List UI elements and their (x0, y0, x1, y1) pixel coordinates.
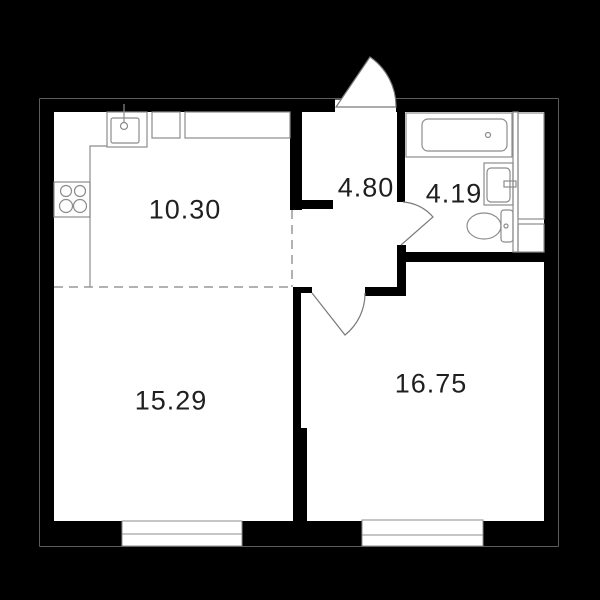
wall-room-top (365, 287, 406, 296)
room-label-living-room: 15.29 (135, 386, 208, 417)
entrance-door-swing (336, 57, 396, 107)
room-label-bathroom: 4.19 (426, 179, 483, 210)
wall-between-rooms-upper (293, 293, 301, 428)
room-label-room: 16.75 (395, 369, 468, 400)
floor-plan: 10.30 4.80 4.19 15.29 16.75 (0, 0, 600, 600)
wall-between-rooms-lower (293, 428, 307, 521)
wall-top-left (40, 99, 335, 112)
wall-right (544, 99, 558, 546)
wall-left (40, 99, 54, 546)
window-right (362, 520, 483, 546)
room-label-kitchen: 10.30 (149, 195, 222, 226)
floor-plan-drawing (0, 0, 600, 600)
wall-top-right (396, 99, 558, 112)
wall-bathroom-left-upper (397, 112, 405, 202)
wall-hallway-stub (290, 200, 333, 209)
wall-door-stub (293, 287, 312, 293)
wall-hallway-left (290, 112, 302, 210)
wall-bathroom-south (405, 252, 544, 262)
room-label-hallway: 4.80 (338, 173, 395, 204)
toilet-tank (501, 210, 513, 242)
